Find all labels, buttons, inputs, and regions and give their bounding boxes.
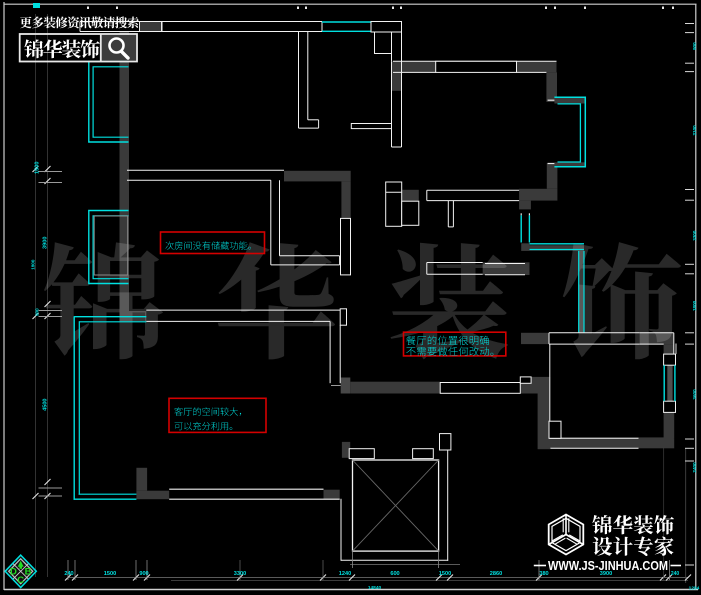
svg-text:2860: 2860: [490, 571, 502, 577]
svg-text:900: 900: [139, 571, 148, 577]
svg-text:B: B: [25, 567, 32, 578]
svg-text:14840: 14840: [368, 585, 382, 591]
svg-text:3600: 3600: [692, 389, 697, 400]
svg-text:C: C: [17, 575, 24, 586]
svg-text:600: 600: [390, 571, 399, 577]
svg-text:3300: 3300: [234, 571, 246, 577]
svg-text:1500: 1500: [104, 571, 116, 577]
svg-text:1500: 1500: [35, 162, 41, 174]
svg-text:3900: 3900: [43, 237, 49, 249]
svg-text:1284: 1284: [689, 586, 700, 592]
svg-text:1500: 1500: [439, 571, 451, 577]
svg-text:2100: 2100: [692, 125, 697, 136]
svg-text:D: D: [10, 567, 17, 578]
svg-text:240: 240: [671, 571, 680, 577]
svg-text:1800: 1800: [692, 300, 697, 311]
svg-text:3300: 3300: [692, 230, 697, 241]
svg-text:1800: 1800: [30, 259, 35, 270]
svg-text:240: 240: [64, 571, 73, 577]
svg-text:2400: 2400: [692, 462, 697, 473]
svg-text:900: 900: [35, 308, 40, 316]
svg-text:900: 900: [692, 42, 697, 50]
svg-text:1240: 1240: [339, 571, 351, 577]
svg-text:WWW.JS-JINHUA.COM: WWW.JS-JINHUA.COM: [548, 559, 668, 573]
svg-text:4500: 4500: [43, 398, 49, 410]
